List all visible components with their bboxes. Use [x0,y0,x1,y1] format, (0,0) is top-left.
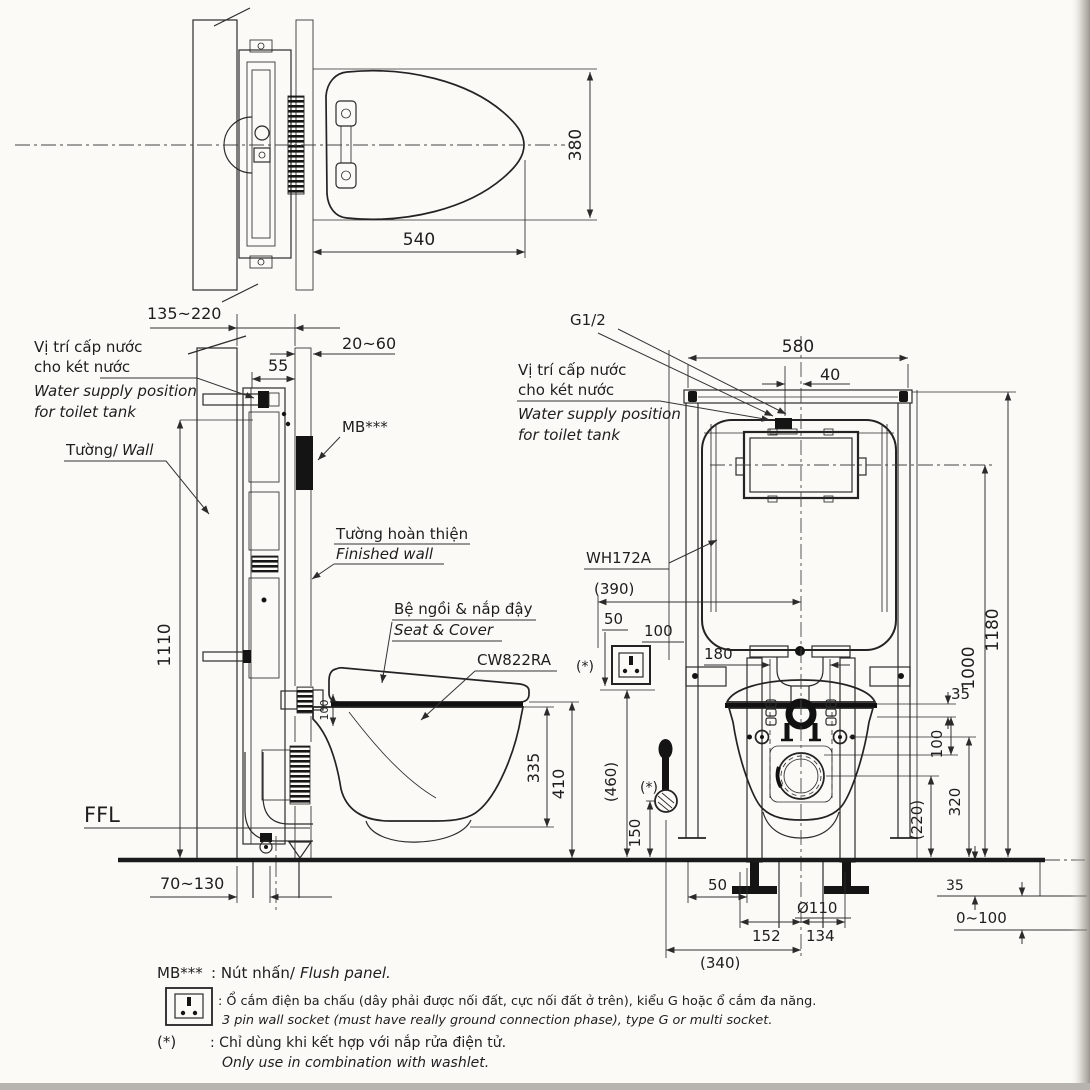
side-label-ffl: FFL [84,803,120,827]
plan-dimensions: 540 380 [313,72,590,258]
side-label-wall-en: Wall [122,441,154,459]
plan-view: 540 380 [15,8,597,302]
side-trapway [366,820,471,842]
front-dim-134: 134 [806,927,835,945]
front-dim-50-leg: 50 [708,876,727,894]
legend-mb-key: MB*** [157,964,203,982]
legend-socket-desc-vi: : Ổ cắm điện ba chấu (dây phải được nối … [218,992,816,1009]
side-label-seat-en: Seat & Cover [394,621,494,639]
side-wall-anchor-bolt [203,652,247,661]
plan-dim-380: 380 [566,129,586,161]
front-dim-580: 580 [782,337,814,357]
front-dim-35-floor: 35 [946,878,964,894]
side-bowl-body [313,707,523,821]
front-stop-valve [655,739,677,812]
legend-socket-icon [166,988,212,1025]
side-label-seat-vi: Bệ ngồi & nắp đậy [394,600,533,618]
side-dim-inlet-100: 100 [318,700,331,721]
front-label-supply-en2: for toilet tank [518,426,621,444]
front-label-supply-vi1: Vị trí cấp nước [518,361,626,379]
front-view: 580 40 1180 1000 35 100 320 (220) 180 [517,311,1087,972]
front-label-supply-vi2: cho két nước [518,381,614,399]
front-flush-bend [777,657,823,686]
front-dim-340: (340) [700,954,740,972]
legend-mb-desc-vi: : Nút nhấn/ [211,964,296,982]
side-frame [203,388,290,844]
front-dim-50-socket: 50 [604,610,623,628]
front-right-leg [840,658,855,862]
front-label-star-socket: (*) [576,659,594,675]
side-supply-pipe [203,394,261,405]
front-dim-40: 40 [820,365,840,384]
front-dim-180: 180 [704,645,733,663]
front-dim-320: 320 [946,788,964,817]
plan-hinge-pad-bottom [336,163,356,188]
side-label-supply-en2: for toilet tank [34,403,137,421]
front-dim-152: 152 [752,927,781,945]
front-label-tank-model: WH172A [586,549,652,567]
side-label-bowl-model: CW822RA [477,651,552,669]
side-bowl [313,668,529,842]
scan-edge-bottom [0,1083,1090,1090]
plan-dim-540: 540 [403,230,435,250]
plan-concealed-tank [224,40,304,268]
front-dim-100-socket: 100 [644,622,673,640]
front-supply-fitting [775,418,792,429]
side-dim-335: 335 [524,753,543,784]
front-left-leg [747,658,762,862]
front-dim-1180: 1180 [983,608,1003,651]
installation-drawing-page: 540 380 [0,0,1090,1090]
side-dim-wall-range: 135~220 [147,304,221,323]
legend-mb-desc-en: Flush panel. [300,964,391,982]
front-dim-1000: 1000 [959,646,979,689]
side-view: 100 135~220 20~60 [34,304,579,912]
side-label-finwall-vi: Tường hoàn thiện [335,525,468,543]
side-label-mb: MB*** [342,418,388,436]
side-structural-wall [197,348,237,860]
side-label-finwall-en: Finished wall [336,545,434,563]
legend: MB*** : Nút nhấn/ Flush panel. : Ổ cắm đ… [157,964,816,1071]
side-label-supply-vi1: Vị trí cấp nước [34,338,142,356]
side-dim-55: 55 [268,356,288,375]
side-label-supply-vi2: cho két nước [34,358,130,376]
side-outlet-elbow [245,746,313,912]
side-label-wall: Tường/Wall [65,441,154,459]
side-seat-cover [329,668,529,702]
front-label-g12: G1/2 [570,311,606,329]
side-dim-finish-range: 20~60 [342,334,396,353]
plan-hinge-pad-top [336,101,356,126]
front-dim-150: 150 [626,819,644,848]
front-dim-screed: 0~100 [956,909,1007,927]
front-feet [732,862,869,894]
front-socket [612,646,650,684]
front-dim-220: (220) [908,800,926,840]
legend-star-key: (*) [157,1033,176,1051]
side-dim-410: 410 [549,769,568,800]
legend-socket-desc-en: 3 pin wall socket (must have really grou… [222,1013,772,1028]
scan-edge-right [1070,0,1090,1090]
front-label-star-valve: (*) [640,780,658,796]
front-dim-390: (390) [594,580,634,598]
front-dim-drain: Ø110 [797,899,837,917]
front-dim-35-rim: 35 [951,685,970,703]
legend-star-desc-vi: : Chỉ dùng khi kết hợp với nắp rửa điện … [210,1034,506,1051]
side-flush-panel [296,436,313,490]
plan-bowl [313,69,597,220]
installation-drawing: 540 380 [0,0,1090,1090]
side-label-wall-vi: Tường/ [65,441,119,459]
plan-structural-wall [193,20,237,290]
front-dim-460: (460) [602,762,620,802]
ffl-level-symbol [289,842,311,858]
front-label-supply-en1: Water supply position [518,405,681,423]
side-dim-outlet-range: 70~130 [160,874,224,893]
front-dim-100: 100 [928,730,946,759]
side-label-supply-en1: Water supply position [34,382,197,400]
legend-star-desc-en: Only use in combination with washlet. [222,1055,489,1071]
side-dim-1110: 1110 [155,623,175,666]
